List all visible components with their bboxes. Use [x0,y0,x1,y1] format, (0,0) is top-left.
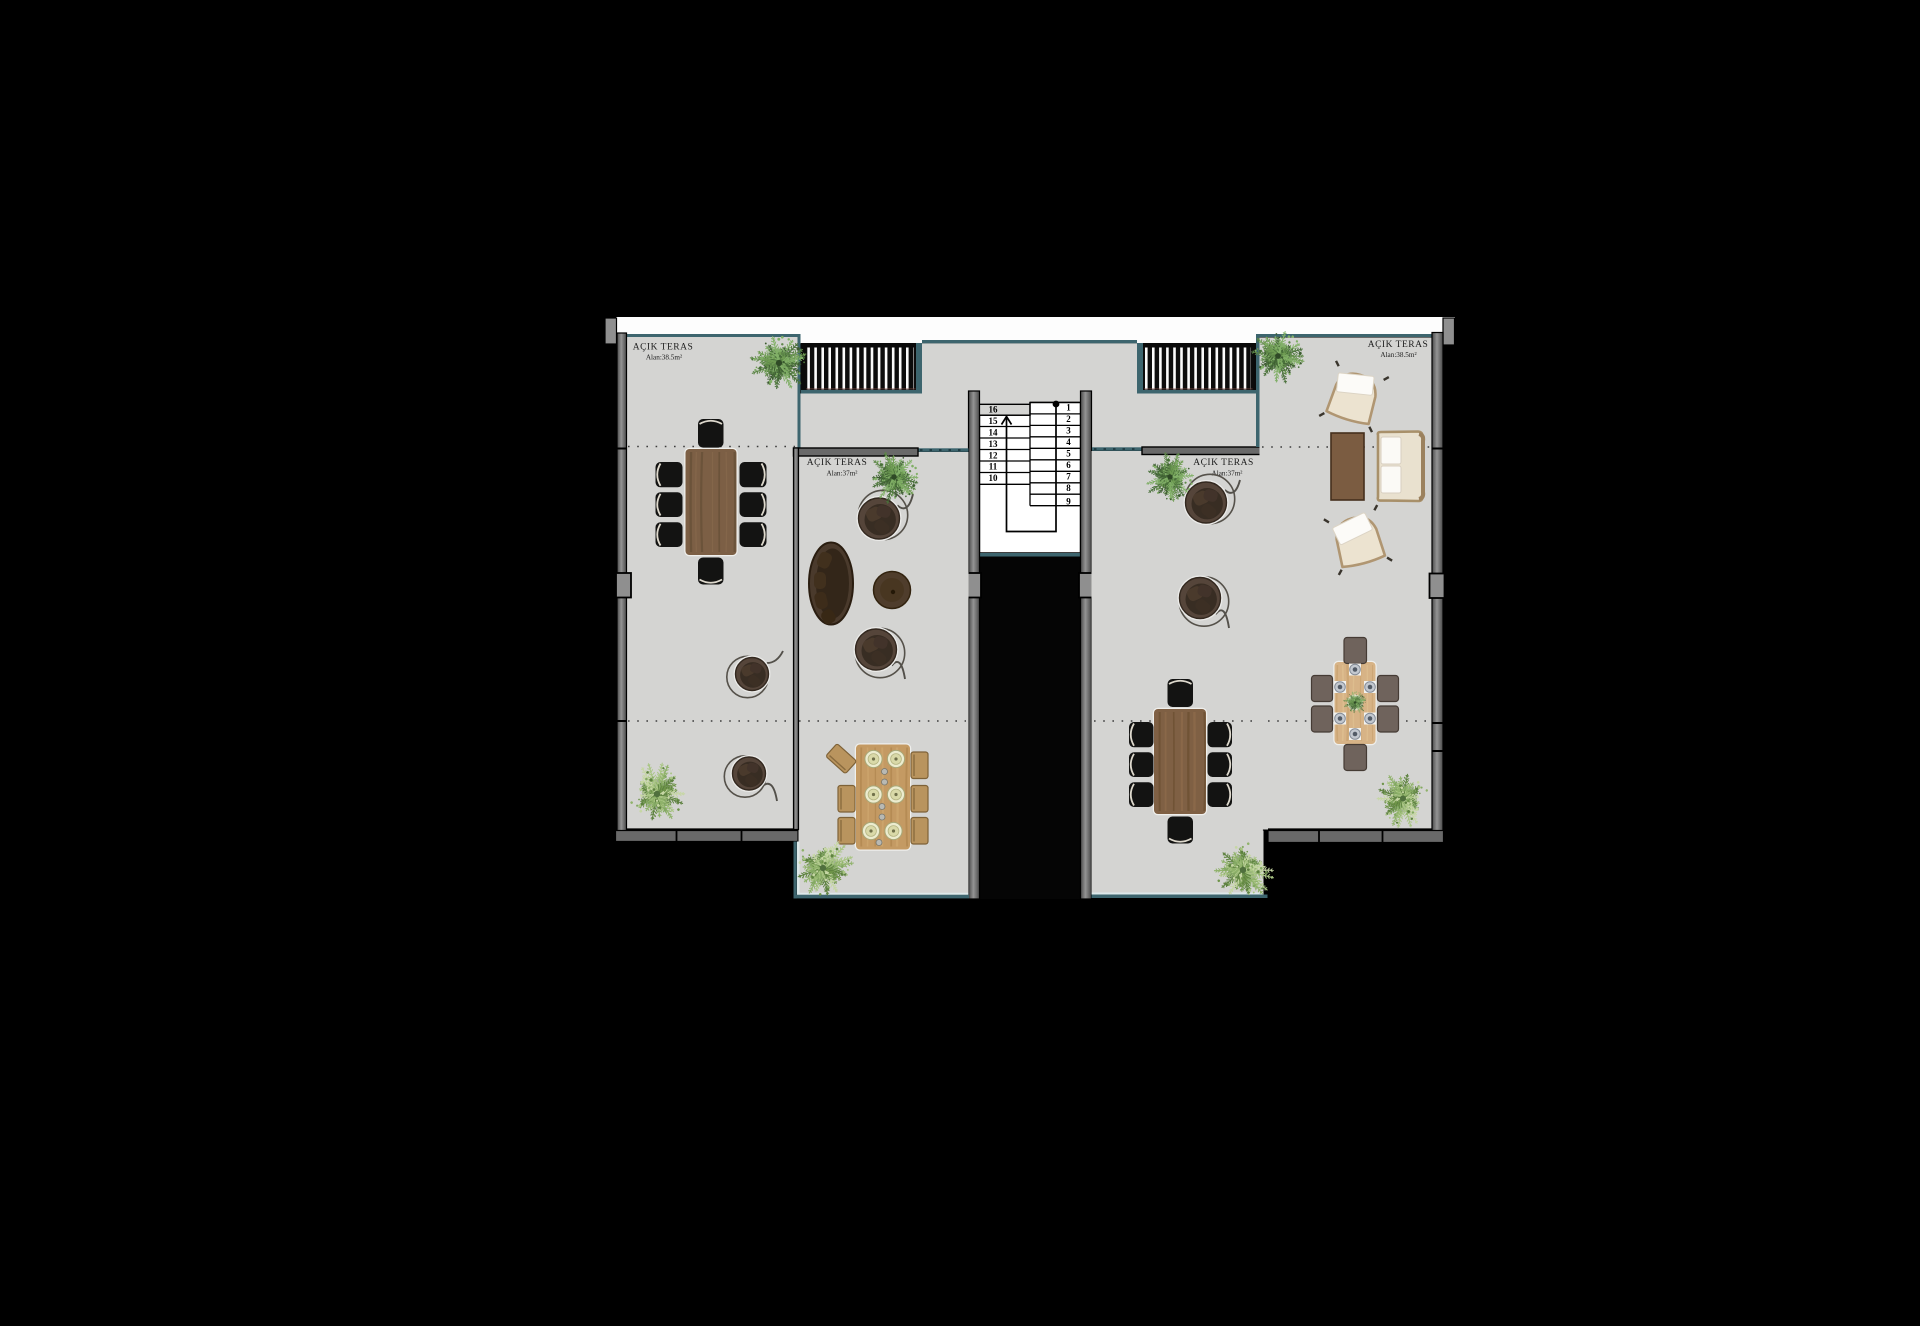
svg-text:13: 13 [989,439,999,449]
svg-text:10: 10 [989,473,999,483]
svg-text:2: 2 [1066,414,1071,424]
svg-text:6: 6 [1066,460,1071,470]
svg-text:AÇIK TERAS: AÇIK TERAS [807,458,868,468]
svg-text:16: 16 [989,405,999,415]
svg-text:14: 14 [989,427,999,437]
svg-text:AÇIK TERAS: AÇIK TERAS [1193,458,1254,468]
svg-text:Alan:37m²: Alan:37m² [1212,470,1243,478]
svg-text:12: 12 [989,450,999,460]
svg-text:Alan:38.5m²: Alan:38.5m² [646,354,682,362]
svg-text:Alan:38.5m²: Alan:38.5m² [1380,351,1416,359]
svg-text:15: 15 [989,416,999,426]
svg-text:AÇIK TERAS: AÇIK TERAS [633,343,694,353]
svg-text:8: 8 [1066,483,1071,493]
svg-text:Alan:37m²: Alan:37m² [827,470,858,478]
svg-text:1: 1 [1066,403,1071,413]
svg-text:5: 5 [1066,449,1071,459]
svg-text:3: 3 [1066,426,1071,436]
svg-text:4: 4 [1066,437,1071,447]
svg-text:11: 11 [989,462,998,472]
svg-text:7: 7 [1066,472,1071,482]
svg-text:AÇIK TERAS: AÇIK TERAS [1368,340,1429,350]
svg-text:9: 9 [1066,497,1071,507]
